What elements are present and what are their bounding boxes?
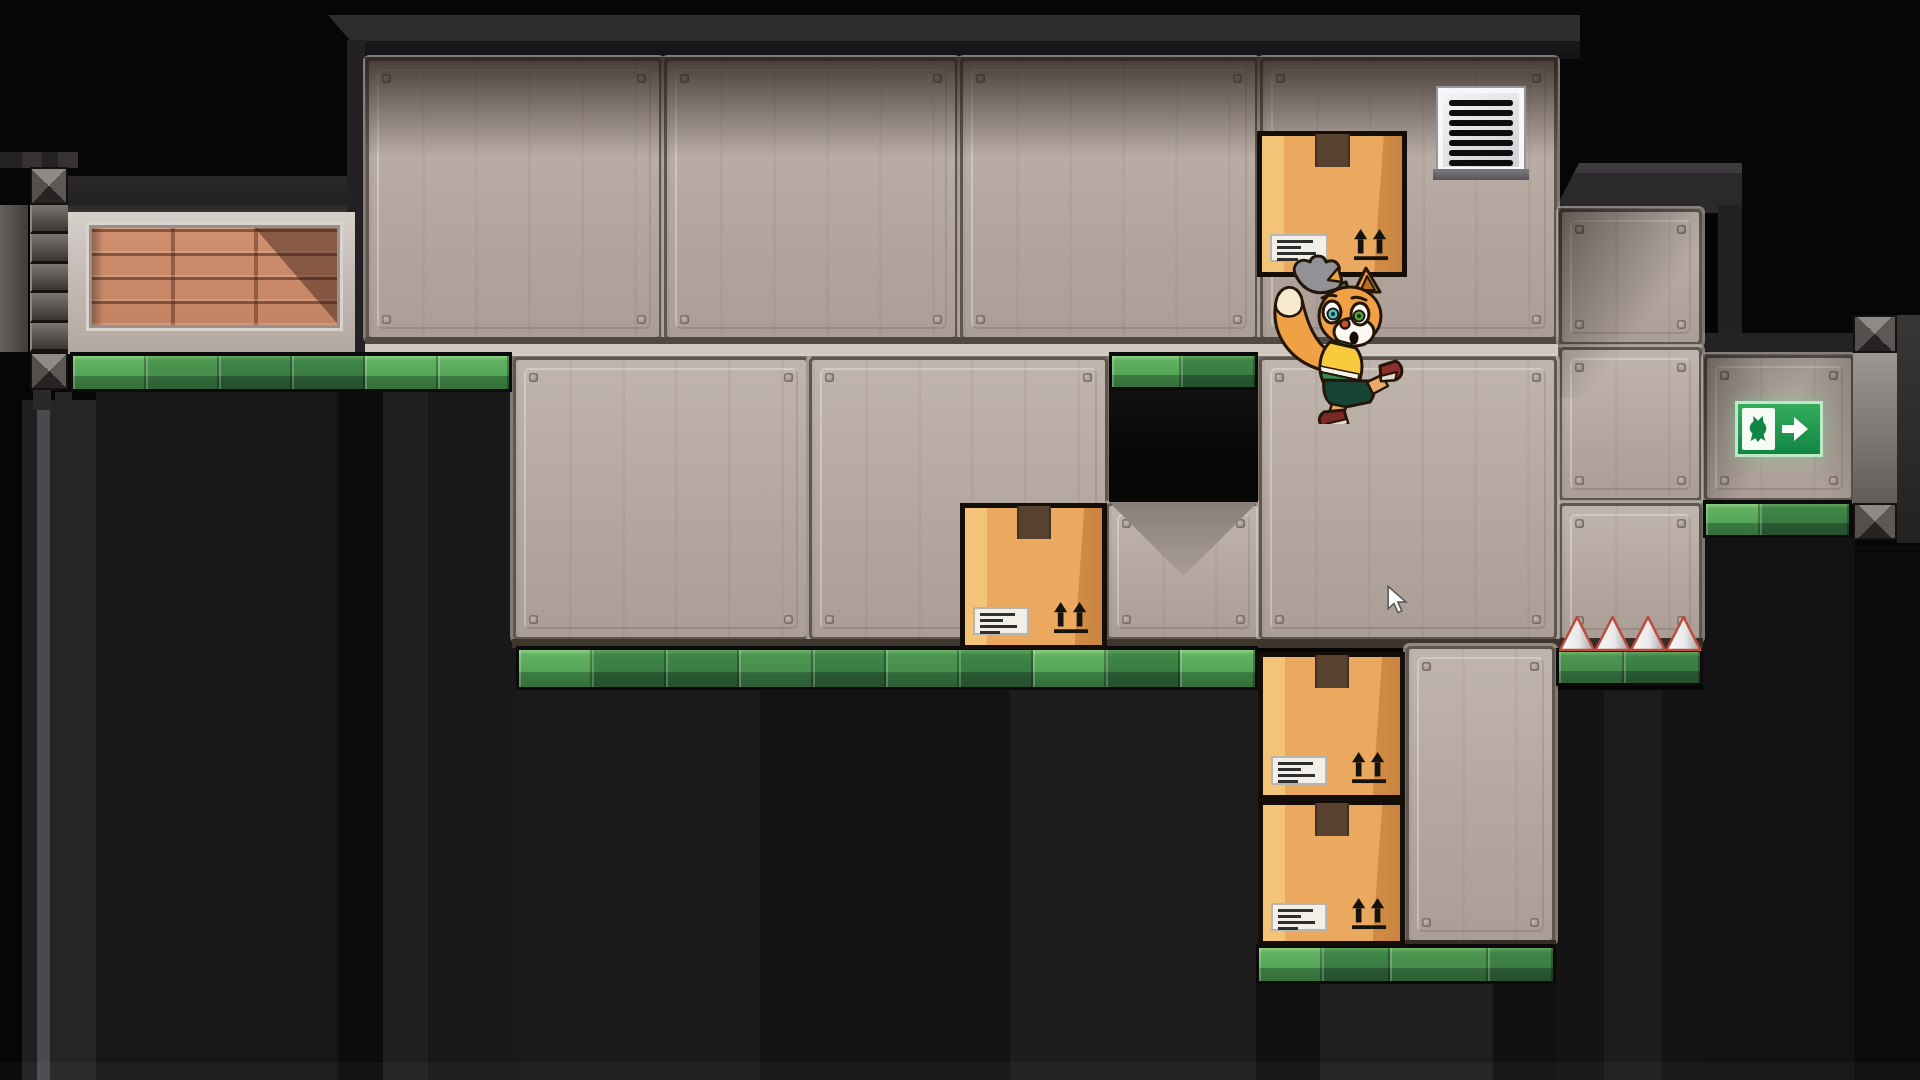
green-tile-segment (1259, 948, 1322, 981)
alcove-ceiling (1703, 333, 1855, 356)
vent-slat (1449, 100, 1513, 106)
green-tile-segment (1181, 356, 1255, 387)
spikes (1558, 614, 1703, 652)
pit-stripe (50, 400, 96, 1080)
rivet-screw (529, 373, 538, 382)
rivet-screw (382, 315, 391, 324)
green-tile-segment (1390, 948, 1488, 981)
rivet-screw (1677, 519, 1686, 528)
rivet-screw (1532, 615, 1541, 624)
rivet-screw (933, 315, 942, 324)
ceiling-step-cap (1553, 163, 1742, 213)
girder-cross-joint (30, 167, 68, 205)
rivet-screw (1236, 615, 1245, 624)
girder-segment (30, 293, 68, 322)
girder-foot-block (33, 390, 51, 410)
girder-foot-block (55, 392, 72, 410)
fox-silhouette-icon (1746, 413, 1770, 445)
right-arrow-icon (1775, 413, 1816, 445)
green-tile-segment (666, 650, 739, 687)
box-tape (1017, 506, 1051, 539)
green-tile-segment (1624, 652, 1700, 683)
girder-cross-joint (1853, 315, 1897, 353)
pit-stripe (96, 392, 338, 1080)
rivet-screw (680, 315, 689, 324)
green-tile-segment (519, 650, 592, 687)
rivet-screw (637, 315, 646, 324)
mouse-cursor (1386, 585, 1408, 615)
pit-stripe (428, 392, 516, 1080)
green-tile-segment (1559, 652, 1624, 683)
girder-cross-joint (1853, 503, 1897, 540)
green-tile-segment (592, 650, 665, 687)
rivet-screw (825, 373, 834, 382)
vent-slat (1449, 110, 1513, 116)
box-tape (1315, 655, 1349, 688)
green-tile-segment (1706, 504, 1760, 535)
rivet-screw (1530, 918, 1539, 927)
game-viewport[interactable] (0, 0, 1920, 1080)
green-tile-segment (813, 650, 886, 687)
green-tile-segment (146, 356, 219, 389)
rivet-screw (1677, 476, 1686, 485)
spike (1631, 617, 1665, 650)
vent-slat (1449, 130, 1513, 136)
exit-sign-panel (1742, 408, 1775, 450)
girder-segments (30, 205, 68, 352)
rivet-screw (529, 615, 538, 624)
box-tape (1315, 134, 1350, 167)
this-side-up-icon (1348, 750, 1392, 784)
rivet-screw (976, 315, 985, 324)
green-tile-segment (1033, 650, 1106, 687)
green-tile-segment (219, 356, 292, 389)
air-vent-lip (1433, 169, 1529, 180)
box-shipping-label (1271, 756, 1327, 785)
rivet-screw (1122, 615, 1131, 624)
floor-sheen (0, 1062, 1920, 1080)
air-vent (1438, 88, 1524, 172)
this-side-up-icon (1348, 896, 1392, 930)
wall-panel (1409, 649, 1552, 940)
green-platform-edge (70, 352, 512, 392)
pit-stripe (1010, 690, 1258, 1080)
rivet-screw (1532, 315, 1541, 324)
pit-stripe (516, 690, 760, 1080)
rivet-screw (1575, 476, 1584, 485)
green-tile-segment (1112, 356, 1181, 387)
green-platform-edge (516, 646, 1258, 690)
green-tile-segment (365, 356, 438, 389)
panel-frame (1570, 514, 1691, 630)
vent-slat (1449, 140, 1513, 146)
box-tape (1315, 803, 1349, 836)
green-tile-segment (73, 356, 146, 389)
ceiling-band (68, 176, 347, 214)
pit-stripe (383, 392, 428, 1080)
green-platform-edge (1703, 500, 1852, 538)
green-platform-edge (1556, 648, 1703, 686)
pit-stripe (1855, 545, 1920, 1080)
ceiling-step-side (1718, 205, 1742, 335)
pit-stripe (1703, 538, 1855, 1080)
girder-segment (30, 264, 68, 293)
wall-panel (516, 360, 806, 637)
green-platform-edge (1256, 944, 1556, 984)
green-tile-segment (292, 356, 365, 389)
rivet-screw (1575, 519, 1584, 528)
rivet-screw (1422, 662, 1431, 671)
box-shipping-label (1271, 903, 1327, 932)
girder-segment (30, 205, 68, 234)
spike (1596, 617, 1630, 650)
vent-slat (1449, 160, 1513, 166)
exit-sign (1735, 401, 1823, 457)
green-tile-segment (739, 650, 812, 687)
vent-slat (1449, 120, 1513, 126)
fox-character[interactable] (1266, 254, 1406, 424)
cardboard-box[interactable] (1258, 652, 1405, 800)
green-tile-segment (1488, 948, 1553, 981)
spike (1560, 617, 1594, 650)
girder-bar (1853, 353, 1897, 503)
green-tile-segment (1760, 504, 1849, 535)
rivet-screw (1233, 315, 1242, 324)
rivet-screw (784, 615, 793, 624)
girder-cross-joint (30, 352, 68, 390)
rivet-screw (825, 615, 834, 624)
green-tile-segment (1180, 650, 1255, 687)
rivet-screw (784, 373, 793, 382)
green-platform-edge (1109, 352, 1258, 390)
girder-segment (30, 323, 68, 352)
girder-top-band (22, 152, 42, 168)
cardboard-box[interactable] (1258, 800, 1405, 946)
panel-frame (1417, 657, 1544, 932)
spike (1667, 617, 1701, 650)
pit-stripe (338, 392, 383, 1080)
pit-stripe (22, 400, 37, 1080)
green-tile-segment (1322, 948, 1391, 981)
recessed-alcove (1109, 388, 1258, 502)
box-shipping-label (973, 607, 1029, 636)
panel-frame (524, 368, 798, 629)
pit-stripe (1604, 690, 1662, 1080)
vent-slat (1449, 150, 1513, 156)
green-tile-segment (959, 650, 1032, 687)
step-shadow (1558, 208, 1703, 398)
rivet-screw (1532, 373, 1541, 382)
ceiling-band (328, 15, 1580, 59)
pit-stripe (37, 400, 50, 1080)
rivet-screw (1422, 918, 1431, 927)
brick-shadow (92, 228, 104, 325)
girder-bar (0, 205, 28, 352)
pit-stripe (760, 690, 1010, 1080)
rivet-screw (1275, 615, 1284, 624)
girder-bar (1897, 315, 1920, 543)
girder-segment (30, 234, 68, 263)
green-tile-segment (886, 650, 959, 687)
green-tile-segment (1106, 650, 1179, 687)
this-side-up-icon (1050, 600, 1094, 634)
cardboard-box[interactable] (960, 503, 1107, 650)
girder-top-band (58, 152, 78, 168)
rivet-screw (1083, 373, 1092, 382)
green-tile-segment (438, 356, 509, 389)
rivet-screw (1530, 662, 1539, 671)
